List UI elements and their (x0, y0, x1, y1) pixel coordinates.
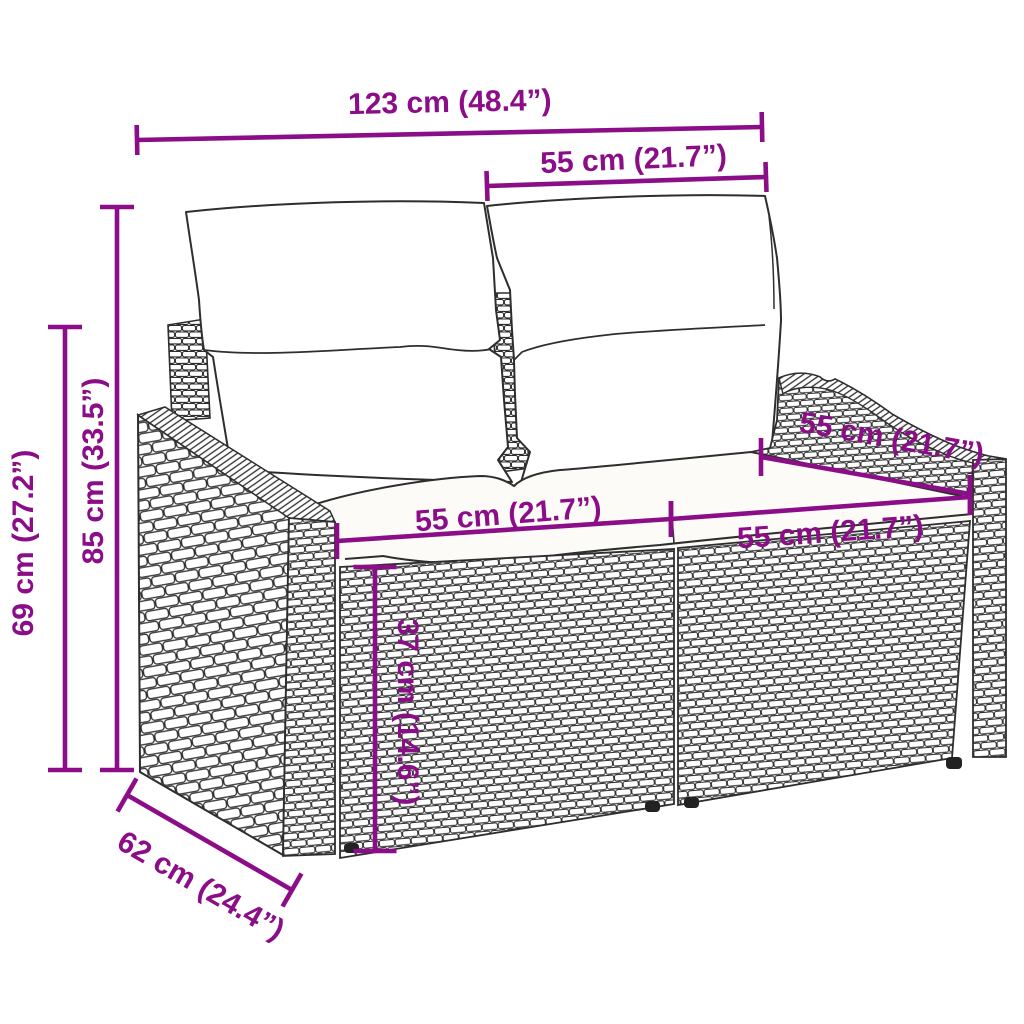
svg-text:37 cm (14.6”): 37 cm (14.6”) (391, 619, 424, 806)
svg-text:85 cm (33.5”): 85 cm (33.5”) (77, 378, 110, 565)
svg-text:69 cm (27.2”): 69 cm (27.2”) (7, 450, 40, 637)
svg-text:123 cm (48.4”): 123 cm (48.4”) (348, 84, 552, 121)
